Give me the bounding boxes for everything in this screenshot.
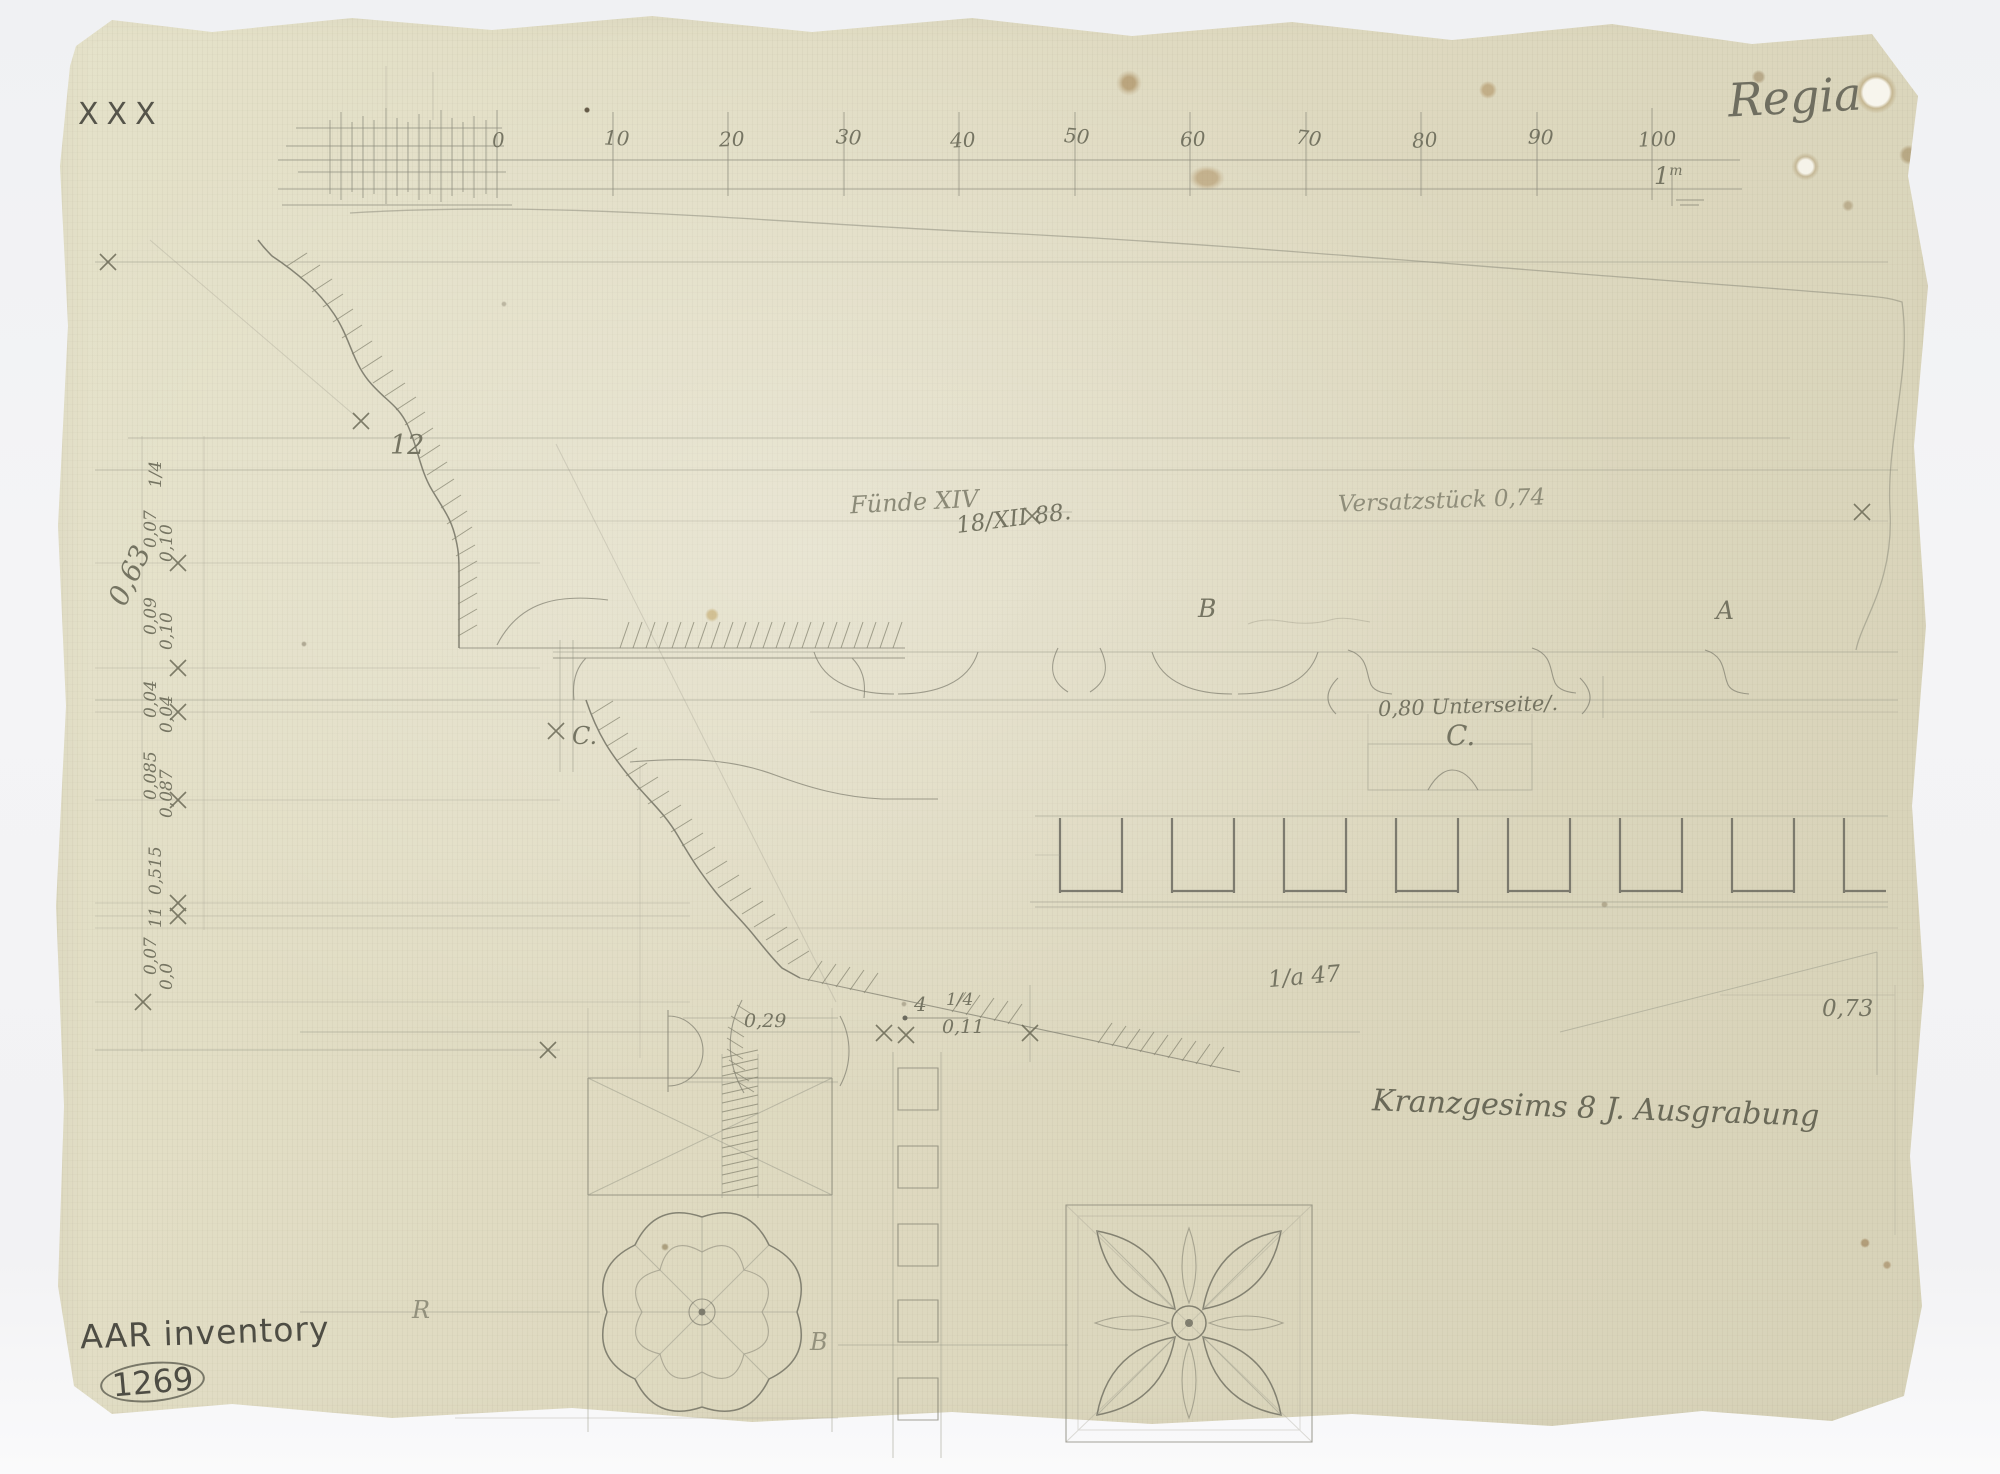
label-c-right: C. [1446,722,1475,750]
margin-dimension: 0,0 [159,963,176,990]
label-a: A [1716,598,1734,623]
scale-tick-label: 40 [949,129,975,150]
annotation-12: 12 [390,432,424,459]
scale-tick-label: 0 [491,130,505,151]
annotation-029: 0,29 [744,1012,786,1031]
scale-tick-label: 20 [719,129,745,150]
label-c-left: C. [572,724,597,748]
paper [52,6,1947,1434]
scale-tick-label: 90 [1528,127,1554,148]
inventory-label: AAR inventory [80,1312,331,1354]
scanned-sheet: XXX Regia 0 10 20 30 40 50 60 70 80 90 1… [0,0,2000,1474]
scale-tick-label: 60 [1180,129,1206,150]
scale-tick-label: 100 [1638,128,1677,149]
sheet-title: Regia [1727,71,1863,124]
scale-tick-label: 10 [603,127,629,148]
annotation-quarter: 1/4 [946,992,973,1009]
label-b2: B [810,1330,828,1354]
annotation-4: 4 [914,994,927,1014]
corner-damage [1707,34,1942,229]
margin-dimension: 0,10 [159,524,176,562]
margin-dimension: 0,087 [159,769,176,818]
margin-dimension: 1/4 [148,461,165,488]
label-r: R [412,1298,430,1322]
margin-dimension: 0,10 [159,612,176,650]
sheet-corner-mark: XXX [78,100,164,130]
margin-dimension: 11 [148,906,165,928]
scale-tick-label: 80 [1411,129,1438,151]
annotation-011: 0,11 [942,1018,984,1037]
margin-dimension: 0,515 [148,846,165,895]
scale-tick-label: 30 [835,126,862,148]
label-b: B [1198,596,1216,621]
stain-marks [52,6,1947,1434]
margin-dimension: 0,04 [159,695,176,733]
annotation-073: 0,73 [1822,998,1873,1021]
scale-unit-label: 1m [1654,164,1683,188]
annotation-ratio: 1/a 47 [1267,963,1341,992]
scale-tick-label: 70 [1295,127,1322,150]
scale-tick-label: 50 [1063,125,1090,147]
